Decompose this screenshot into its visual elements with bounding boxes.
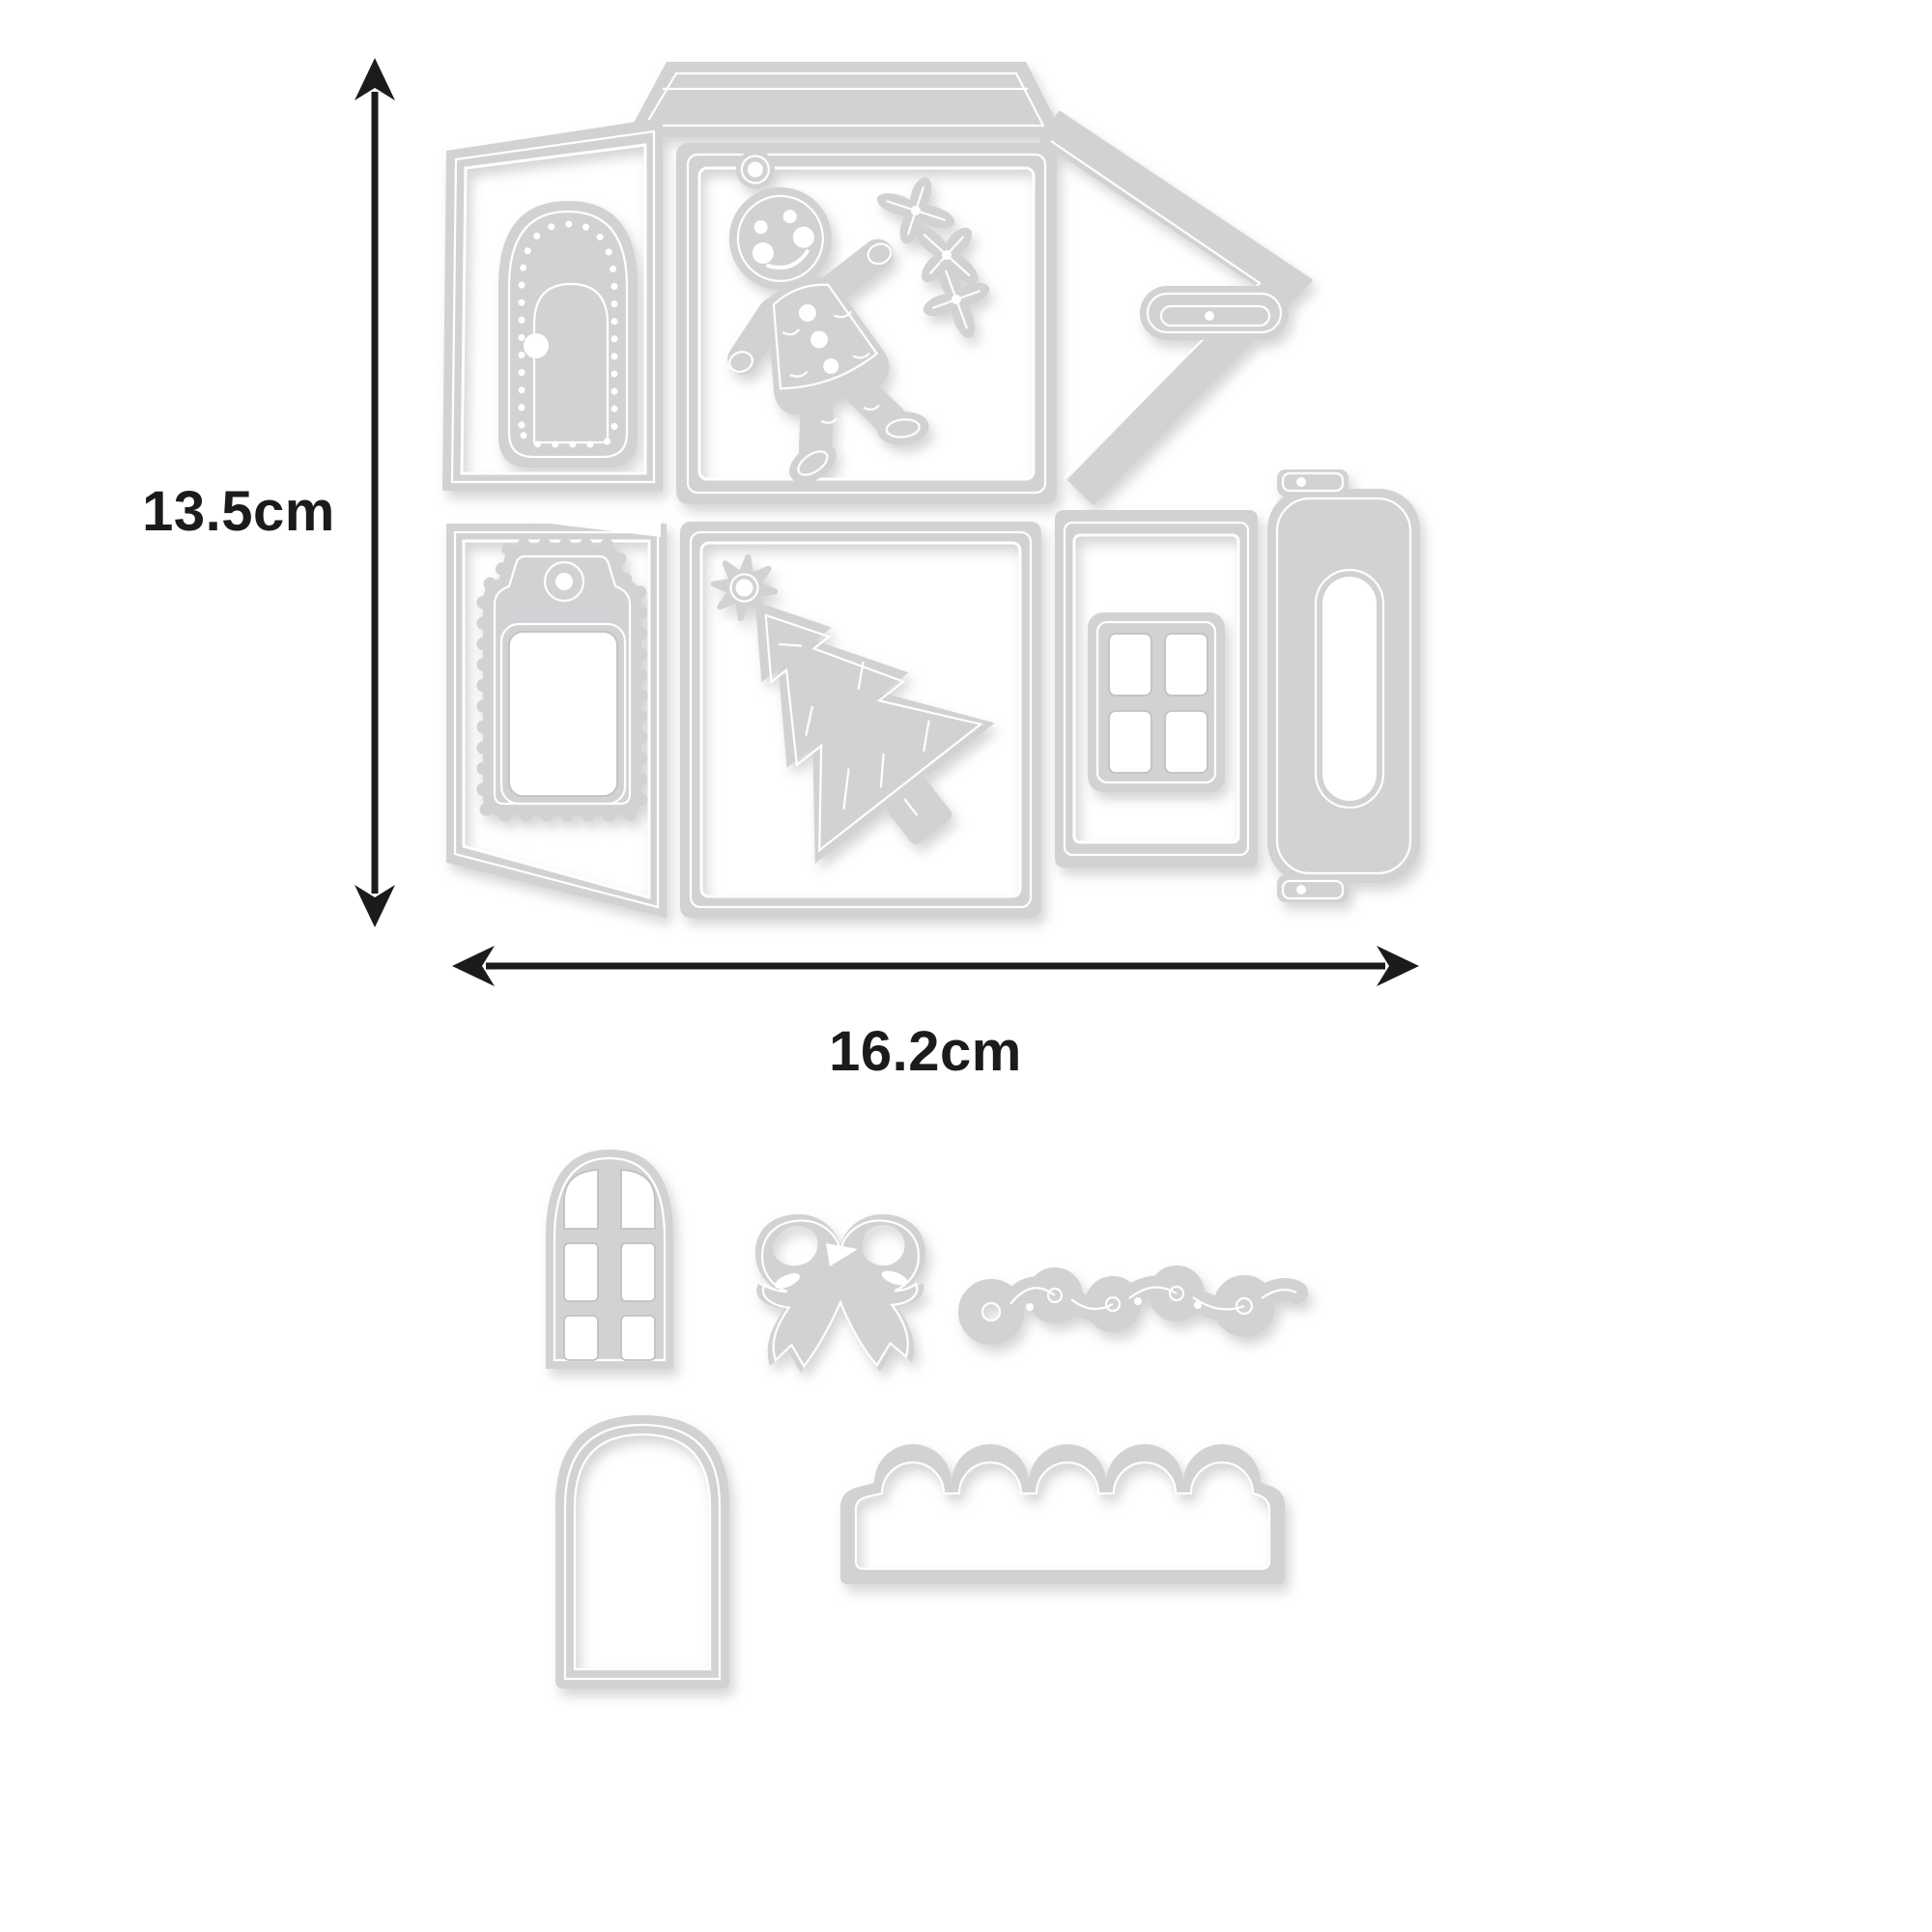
four-pane-window-die xyxy=(1088,612,1225,792)
width-dimension-label: 16.2cm xyxy=(829,1020,1022,1083)
scalloped-tag-die xyxy=(483,545,641,815)
bow-die xyxy=(755,1214,925,1373)
main-house-box-die xyxy=(442,62,1420,918)
slot-tab xyxy=(1140,286,1289,340)
front-panel-frame xyxy=(676,143,1057,504)
arched-door-die xyxy=(498,201,638,468)
product-dimension-diagram: 13.5cm 16.2cm xyxy=(0,0,1932,1932)
scalloped-border-die xyxy=(840,1444,1285,1584)
lid-flap xyxy=(626,62,1065,137)
height-dimension-label: 13.5cm xyxy=(142,480,335,543)
arch-frame-die xyxy=(555,1415,729,1689)
gingerbread-man-die xyxy=(664,117,957,498)
die-set-illustration: 13.5cm 16.2cm xyxy=(0,0,1932,1932)
doorknob-hole xyxy=(524,333,549,358)
width-dimension: 16.2cm xyxy=(452,946,1419,1083)
scroll-flourish-die xyxy=(970,1277,1296,1333)
closure-flap xyxy=(1049,126,1289,493)
height-dimension: 13.5cm xyxy=(142,58,395,927)
arched-window-die xyxy=(546,1150,673,1369)
carry-handle-die xyxy=(1267,469,1420,902)
